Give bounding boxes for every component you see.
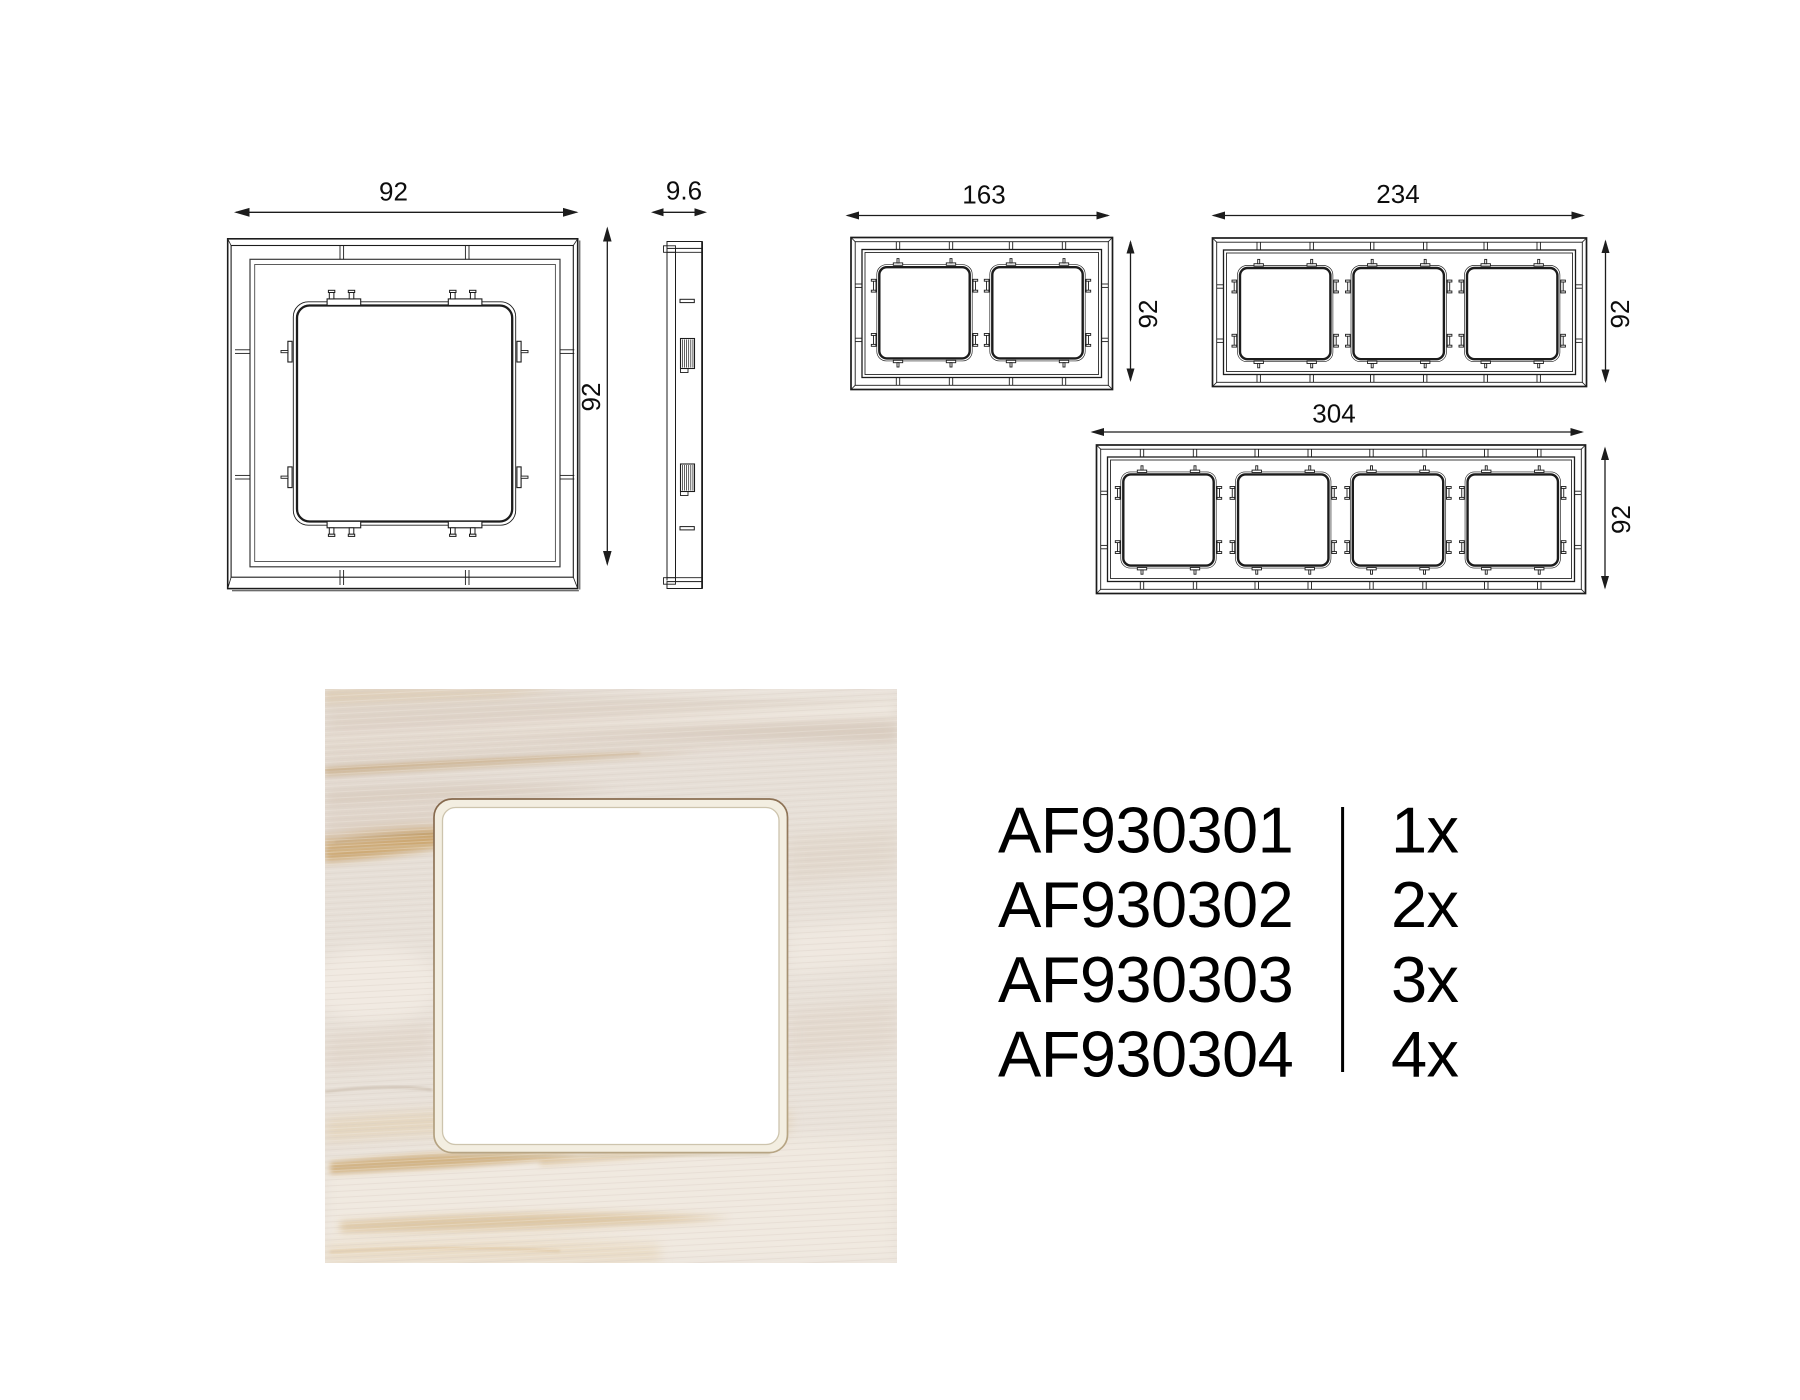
svg-text:AF930302: AF930302 xyxy=(998,868,1293,941)
svg-text:4x: 4x xyxy=(1391,1018,1459,1091)
svg-text:92: 92 xyxy=(1133,300,1163,329)
svg-text:304: 304 xyxy=(1312,399,1355,429)
svg-text:AF930303: AF930303 xyxy=(998,943,1293,1016)
svg-text:AF930301: AF930301 xyxy=(998,794,1293,867)
svg-text:9.6: 9.6 xyxy=(666,176,702,206)
svg-text:92: 92 xyxy=(379,177,408,207)
svg-text:2x: 2x xyxy=(1391,868,1459,941)
svg-text:234: 234 xyxy=(1376,179,1419,209)
svg-text:3x: 3x xyxy=(1391,943,1459,1016)
svg-text:92: 92 xyxy=(1606,505,1636,534)
svg-text:AF930304: AF930304 xyxy=(998,1018,1293,1091)
svg-text:1x: 1x xyxy=(1391,794,1459,867)
svg-text:92: 92 xyxy=(576,383,606,412)
svg-text:92: 92 xyxy=(1605,300,1635,329)
svg-text:163: 163 xyxy=(962,180,1005,210)
